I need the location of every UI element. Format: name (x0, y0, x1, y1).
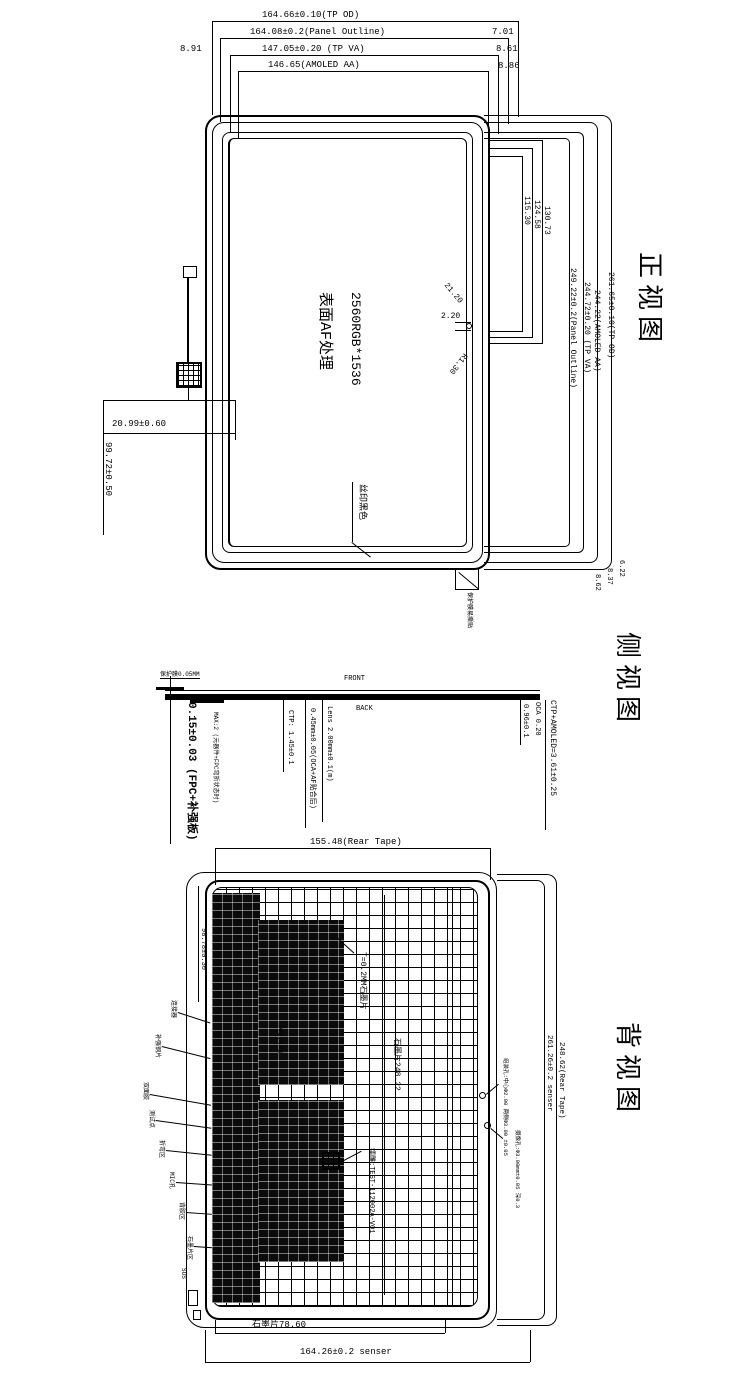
hole-circle (479, 1092, 486, 1099)
front-face-label: FRONT (344, 676, 365, 683)
dim-label: 7.01 (492, 28, 514, 37)
ic-component-hatch (176, 362, 202, 388)
fpc-callout-label: 背胶区 (178, 1202, 184, 1220)
fpc-area (212, 893, 260, 1303)
dim-label: 124.58 (532, 200, 540, 229)
dim-label: 8.91 (180, 45, 202, 54)
dim-line (205, 1362, 530, 1363)
dim-label: 244.22(AMOLED AA) (592, 290, 600, 372)
dim-label: 20.99±0.60 (112, 420, 166, 429)
fpc-callout-label: 双面胶 (142, 1082, 148, 1100)
fpc-edge-line (187, 278, 189, 364)
dim-label: 99.72±0.50 (103, 442, 112, 496)
dim-line (455, 330, 471, 331)
fpc-callout-label: 折弯区 (158, 1140, 164, 1158)
side-top-line (165, 690, 540, 691)
dim-label: 155.48(Rear Tape) (310, 838, 402, 847)
extension-line (508, 38, 509, 124)
film-tab-label: 保护膜易撕贴 (466, 592, 472, 628)
dim-label: 248.62(Rear Tape) (557, 1042, 565, 1119)
fpc-callout-label: 石墨片区 (186, 1236, 192, 1260)
oca-thickness-label: 0.45mm±0.05(OCA+AF贴合后) (308, 708, 315, 809)
silk-print-label: 丝印黑色 (357, 484, 366, 520)
film-note: 保护膜0.05MM (160, 672, 200, 679)
dim-line (215, 848, 490, 849)
dim-line (215, 1333, 445, 1334)
extension-line (220, 38, 221, 122)
leader-line (305, 700, 306, 828)
back-face-label: BACK (356, 706, 373, 713)
small-dim-label: 0.96±0.1 (521, 704, 528, 738)
dim-label: 147.05±0.20 (TP VA) (262, 45, 365, 54)
dim-label: 130.73 (542, 206, 550, 235)
dim-label: 8.61 (496, 45, 518, 54)
laser-mark-label: 镭雕:TEST-112002A-V01 (367, 1148, 374, 1233)
max-thickness-label: MAX:2 (元器件+FPC弯折状态时) (212, 712, 218, 803)
graphite-note-label: T=0.2MM石墨片 (358, 952, 366, 1010)
dim-label: 146.65(AMOLED AA) (268, 61, 360, 70)
dim-line (220, 38, 508, 39)
dim-line (103, 433, 235, 434)
rear-view-title: 背视图 (614, 1022, 640, 1118)
extension-frame (490, 156, 523, 332)
leader-line (545, 700, 546, 830)
extension-line (212, 21, 213, 115)
dim-label: 8.37 (605, 568, 612, 585)
dim-label: 164.26±0.2 senser (300, 1348, 392, 1357)
dim-line (238, 71, 488, 72)
fpc-callout-label: 补强钢片 (154, 1034, 160, 1058)
extension-line (215, 1320, 216, 1333)
stack-thickness-label: CTP+AMOLED=3.61±0.25 (548, 700, 556, 796)
engineering-drawing-page: 164.66±0.10(TP OD) 164.08±0.2(Panel Outl… (0, 0, 750, 1390)
extension-line (205, 1330, 206, 1362)
dim-line (230, 55, 498, 56)
bracket-line (103, 400, 235, 401)
extension-line (445, 1320, 446, 1333)
holes-note-label: Φ1.4×8 (275, 1028, 282, 1053)
tape-edge-line (452, 887, 453, 1307)
dim-label: 261.65±0.10(TP OD) (606, 272, 614, 358)
graphite-dim-label: 石墨片248.22 (392, 1038, 400, 1091)
dim-label: 6.22 (617, 560, 624, 577)
dim-label: 164.08±0.2(Panel Outline) (250, 28, 385, 37)
dim-label: 261.26±0.2 senser (545, 1035, 553, 1112)
side-view-title: 侧视图 (614, 632, 640, 728)
lens-thickness-label: Lens 2.00mm±0.1(m) (325, 706, 332, 782)
dim-label: 244.72±0.20 (TP VA) (582, 282, 590, 373)
dim-label: 2.20 (441, 313, 460, 321)
fpc-callout-label: MIC孔 (168, 1172, 174, 1189)
dim-label: 石墨片78.60 (252, 1321, 306, 1330)
sus-part-outline (188, 1290, 198, 1306)
oca-layer-label: OCA 0.20 (533, 702, 540, 736)
laser-mark-hatch (322, 1152, 340, 1170)
sus-label: SUS (180, 1268, 186, 1279)
dim-label: 249.22±0.2(Panel Outline) (568, 268, 576, 388)
surface-treatment-text: 表面AF处理 (317, 292, 332, 370)
hole-circle (466, 323, 472, 329)
fpc-area (258, 1100, 344, 1262)
dim-line (212, 21, 518, 22)
connector-outline (183, 266, 197, 278)
thickness-label: 0.15±0.03 (FPC+补强板) (185, 702, 196, 841)
dim-label: 98.78±0.30 (199, 928, 206, 970)
resolution-text: 2560RGB*1536 (349, 292, 362, 386)
fpc-callout-label: 测试点 (148, 1110, 154, 1128)
extension-line (235, 400, 236, 440)
fpc-callout-label: 连接器 (170, 1000, 176, 1018)
leader-line (322, 700, 323, 822)
front-view-title: 正视图 (636, 252, 662, 348)
extension-line (518, 21, 519, 117)
leader-line (283, 700, 284, 772)
fpc-area (258, 920, 344, 1085)
extension-line (530, 1330, 531, 1362)
sus-part-outline (193, 1310, 201, 1320)
dim-label: 164.66±0.10(TP OD) (262, 11, 359, 20)
leader-line (352, 482, 353, 542)
dim-line (384, 895, 385, 1295)
leader-line (170, 676, 171, 844)
dim-label: 8.62 (593, 574, 600, 591)
ctp-thickness-label: CTP: 1.45±0.1 (286, 710, 293, 765)
fpc-edge-line (188, 388, 189, 400)
dim-label: 115.30 (522, 196, 530, 225)
